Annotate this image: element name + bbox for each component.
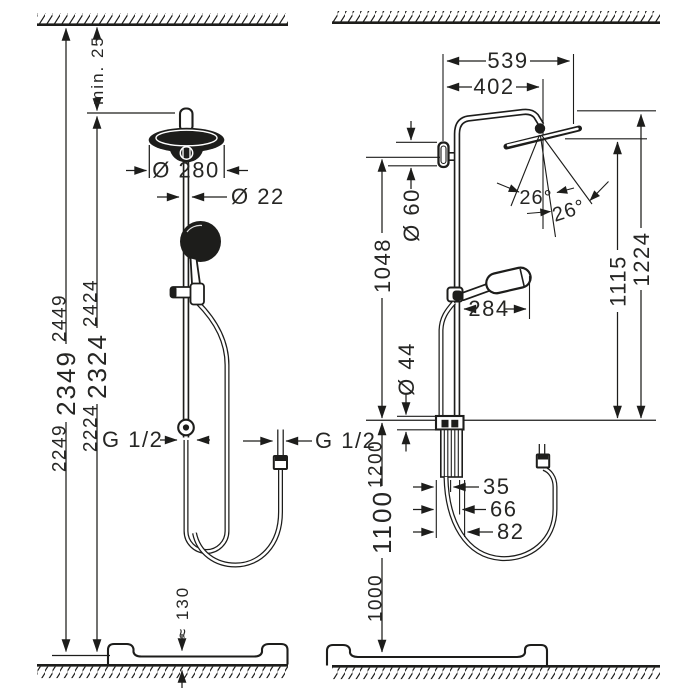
angle-arrow: [527, 212, 551, 214]
dim-total-height-high: 2449: [50, 294, 71, 342]
dim-head-diameter-label: Ø 280: [152, 158, 219, 183]
spray-angle-left-label: 26°: [519, 187, 552, 209]
riser-pipe-side-outline: [457, 112, 542, 416]
dim-below-gap-mid: 2324: [82, 333, 112, 399]
hose-connector-side-band: [538, 456, 548, 460]
dim-height-below-gap: 2424 2324 2224: [81, 117, 113, 652]
dim-escutcheon-diameter-label: Ø 60: [399, 188, 424, 242]
head-arm-connector: [535, 123, 545, 133]
dim-escutcheon-diameter: Ø 60: [388, 121, 437, 242]
dim-offset-large-label: 82: [497, 519, 524, 544]
shower-tray-front: [108, 644, 288, 665]
dim-hand-shower-reach-label: 284: [468, 296, 509, 321]
front-view: 2449 2349 2249 min. 25 2424 2324 2224: [37, 13, 376, 688]
outlet-fitting-detail: [442, 420, 449, 428]
dim-tray-height-label: ≈ 130: [173, 586, 192, 638]
hose-connector-band: [275, 457, 286, 461]
side-view: 539 402 26° 26°: [327, 11, 660, 679]
dim-below-gap-high: 2424: [81, 279, 102, 327]
dim-outlet-height-low: 1000: [366, 574, 387, 622]
dim-head-diameter: Ø 280: [126, 158, 248, 183]
dim-hose-thread: G 1/2: [243, 428, 376, 453]
dim-ceiling-gap-label: min. 25: [88, 35, 107, 105]
angle-arrow: [590, 182, 609, 201]
outlet-fitting: [436, 416, 464, 430]
dim-reach-overall: 539: [447, 48, 570, 73]
dim-offset-medium-label: 66: [490, 497, 517, 522]
hand-shower-front: [180, 221, 221, 262]
dim-pipe-diameter-label: Ø 22: [231, 184, 285, 209]
hose-bundle: [441, 430, 462, 478]
angle-arrow: [557, 188, 574, 193]
dim-outlet-offsets: 35 66 82: [413, 474, 524, 544]
ceiling-hatch-side: [332, 11, 660, 23]
holder-side-knob: [453, 291, 463, 301]
hand-shower-head-side: [484, 266, 532, 296]
dim-outlet-diameter-label: Ø 44: [394, 342, 419, 396]
dim-supply-height-label: 1048: [370, 238, 395, 293]
dim-ceiling-gap: min. 25: [87, 28, 175, 114]
shower-tray-side: [327, 645, 547, 666]
floor-hatch-front: [37, 667, 288, 679]
dim-reach-arm: 402: [447, 74, 539, 99]
supply-connection-valve-dot: [183, 424, 189, 430]
dim-outlet-height-mid: 1100: [367, 490, 397, 554]
outlet-fitting-detail: [451, 420, 458, 428]
riser-pipe-side: [457, 112, 542, 416]
slider-holder-clamp: [191, 284, 205, 305]
dim-outlet-diameter: Ø 44: [394, 342, 435, 451]
dim-total-height-mid: 2349: [51, 350, 81, 416]
technical-drawing-page: 2449 2349 2249 min. 25 2424 2324 2224: [0, 0, 700, 700]
dim-pipe-diameter: Ø 22: [157, 184, 285, 209]
dim-outlet-height: 1200 1100 1000: [366, 423, 398, 652]
angle-arrow: [497, 183, 519, 192]
shower-system-dimension-drawing: 2449 2349 2249 min. 25 2424 2324 2224: [0, 0, 700, 700]
floor-hatch-side: [332, 668, 660, 680]
spray-angle-right-label: 26°: [550, 195, 588, 226]
dim-reach-arm-label: 402: [473, 74, 514, 99]
slider-holder-knob: [171, 287, 177, 298]
dim-clearance-arm-label: 1224: [629, 232, 654, 287]
dim-offset-small-label: 35: [483, 474, 510, 499]
dim-outlet-height-high: 1200: [366, 440, 387, 488]
dim-total-height-low: 2249: [50, 424, 71, 472]
spray-cone: 26° 26°: [497, 135, 609, 237]
dim-below-gap-low: 2224: [81, 404, 102, 452]
dim-reach-overall-label: 539: [487, 48, 528, 73]
ceiling-hatch-front: [37, 13, 288, 25]
dim-supply-thread-label: G 1/2: [102, 427, 163, 452]
dim-clearance-head-label: 1115: [606, 255, 631, 307]
dim-total-height: 2449 2349 2249: [50, 29, 82, 652]
